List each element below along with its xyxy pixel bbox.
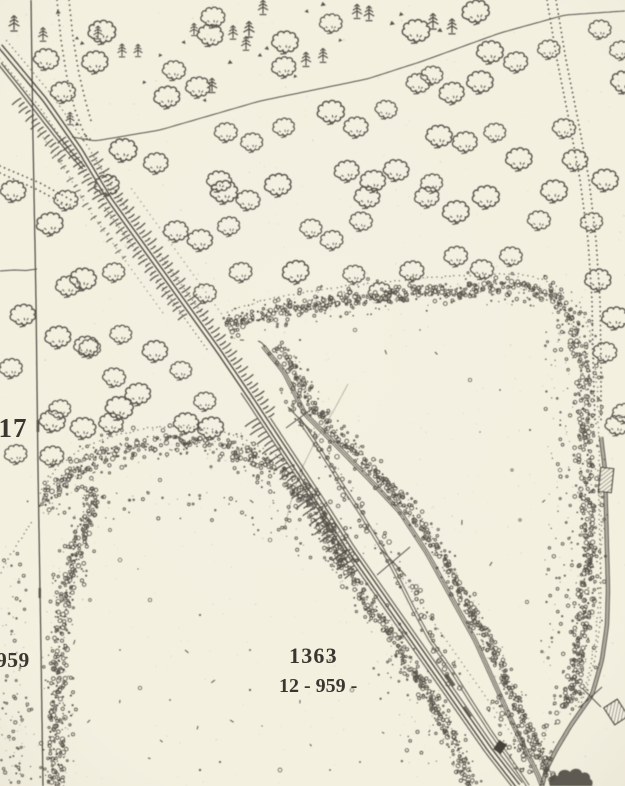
svg-text:959: 959 [0,648,30,672]
svg-text:1363: 1363 [289,643,338,668]
svg-text:317: 317 [0,413,28,443]
svg-text:12 - 959 -: 12 - 959 - [279,675,357,697]
